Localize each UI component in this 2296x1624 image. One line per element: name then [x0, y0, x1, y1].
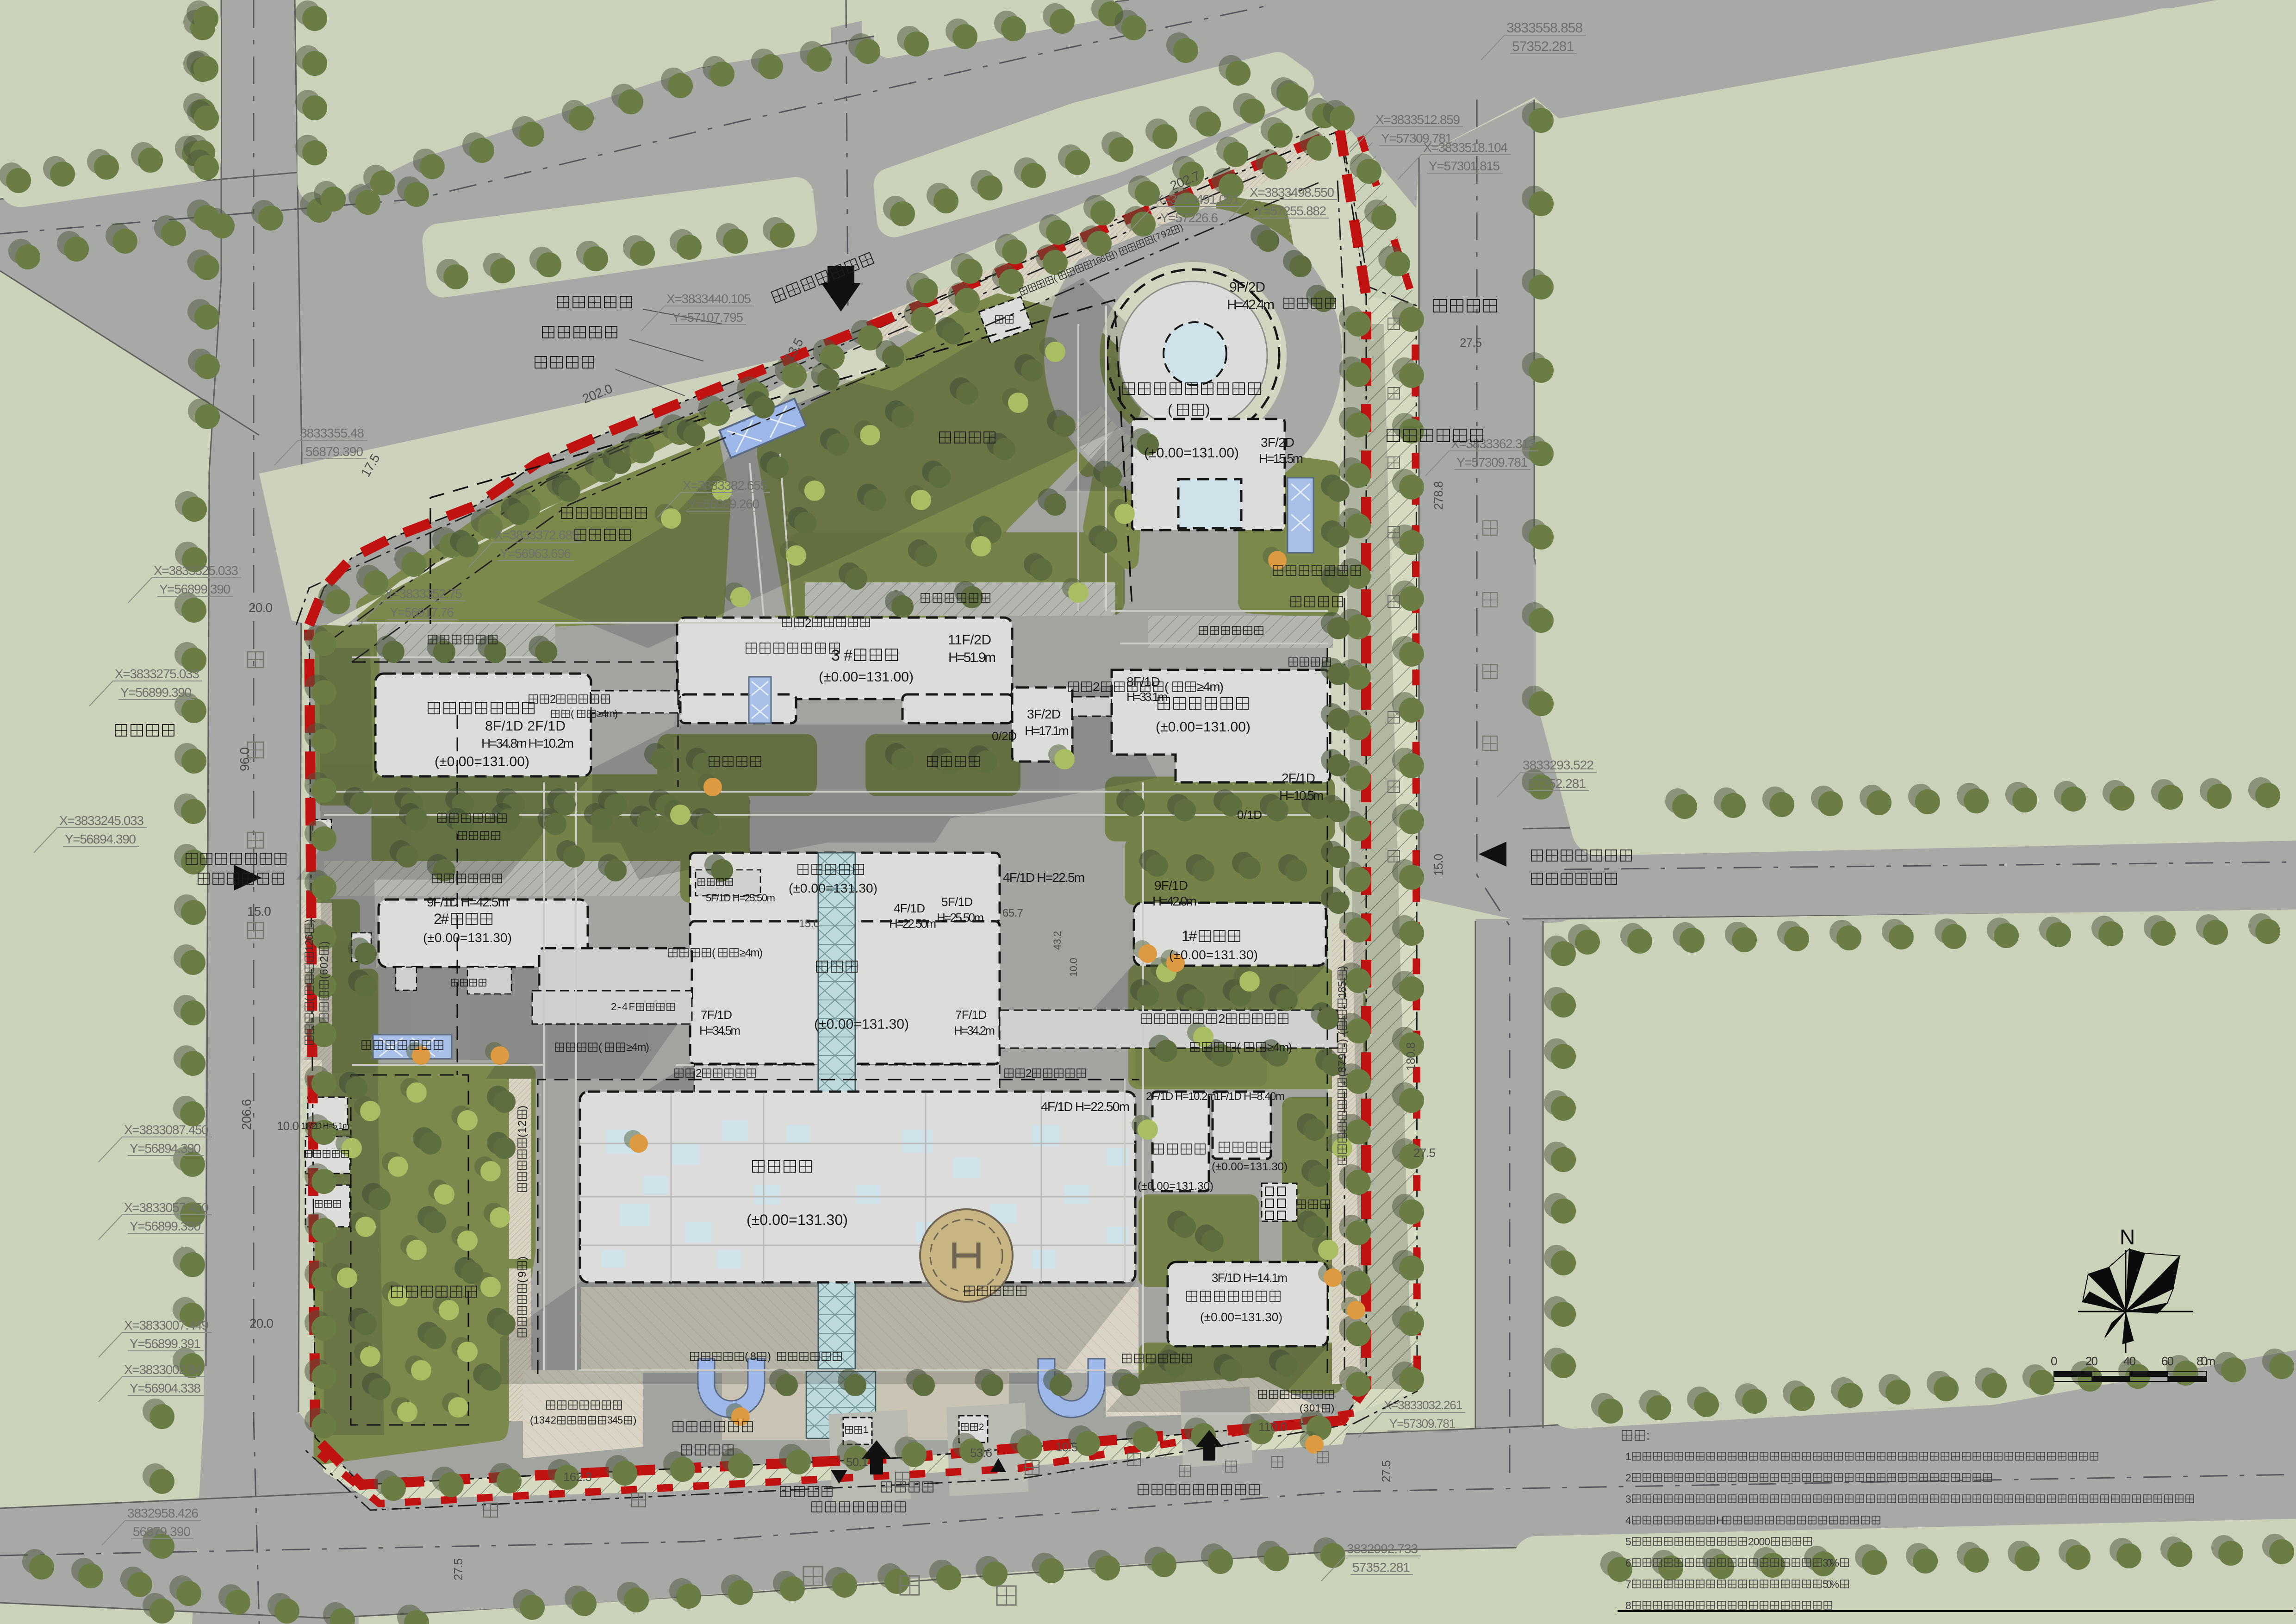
- svg-text:X=3833325.033: X=3833325.033: [154, 563, 238, 578]
- svg-text:3833558.858: 3833558.858: [1506, 20, 1583, 36]
- svg-text:X=3833440.105: X=3833440.105: [666, 292, 751, 306]
- svg-text:9F/1D: 9F/1D: [1154, 878, 1188, 893]
- svg-text:126: 126: [303, 934, 316, 951]
- svg-text:60: 60: [2161, 1354, 2174, 1368]
- svg-text:2: 2: [805, 616, 811, 630]
- svg-text:0/2D: 0/2D: [992, 729, 1017, 743]
- svg-text:(9: (9: [516, 1271, 529, 1283]
- svg-text:5: 5: [1625, 1536, 1631, 1548]
- svg-text:H=22.50m: H=22.50m: [889, 917, 936, 931]
- svg-text:Y=56899.390: Y=56899.390: [130, 1219, 201, 1233]
- svg-text:57352.281: 57352.281: [1352, 1560, 1410, 1574]
- svg-text:): ): [1331, 1402, 1334, 1414]
- svg-text:4F/1D H=22.5m: 4F/1D H=22.5m: [1003, 870, 1085, 885]
- svg-text:(±0.00=131.00): (±0.00=131.00): [435, 754, 529, 769]
- svg-text:X=3833245.033: X=3833245.033: [59, 813, 144, 828]
- svg-text:2: 2: [1026, 1067, 1032, 1080]
- svg-text:(301: (301: [1300, 1402, 1321, 1414]
- svg-text:8: 8: [1625, 1599, 1631, 1612]
- svg-text:7F/1D: 7F/1D: [955, 1008, 987, 1022]
- svg-text:10.0: 10.0: [277, 1119, 299, 1133]
- svg-text:185: 185: [1336, 981, 1349, 998]
- svg-text:(±0.00=131.30): (±0.00=131.30): [1212, 1161, 1288, 1173]
- svg-text:4F/1D: 4F/1D: [894, 901, 925, 915]
- svg-text:27.5: 27.5: [1460, 336, 1482, 350]
- svg-text:H: H: [1716, 1514, 1724, 1526]
- svg-text:0: 0: [2051, 1354, 2057, 1368]
- svg-text:2: 2: [1625, 1472, 1631, 1484]
- svg-text:X=3833372.689: X=3833372.689: [494, 528, 579, 542]
- svg-text:1: 1: [863, 1425, 868, 1435]
- svg-text:(±0.00=131.30): (±0.00=131.30): [789, 881, 877, 895]
- svg-text:50.1: 50.1: [846, 1455, 868, 1469]
- svg-text:(±0.00=131.00): (±0.00=131.00): [819, 669, 914, 685]
- svg-text:3832992.733: 3832992.733: [1347, 1542, 1418, 1556]
- svg-text:X=3833057.450: X=3833057.450: [124, 1200, 209, 1215]
- svg-text:X=3833275.033: X=3833275.033: [115, 667, 199, 681]
- svg-text:3: 3: [1625, 1493, 1631, 1505]
- svg-text:206.6: 206.6: [239, 1099, 254, 1130]
- svg-text:30%: 30%: [1823, 1557, 1839, 1569]
- svg-text:H=51.9m: H=51.9m: [948, 650, 996, 665]
- svg-text:80m: 80m: [2196, 1354, 2215, 1368]
- svg-text:20.0: 20.0: [249, 600, 273, 615]
- svg-text:1F/2D H=5.1m: 1F/2D H=5.1m: [301, 1121, 349, 1131]
- svg-text:H=17.1m: H=17.1m: [1025, 724, 1069, 738]
- svg-text:Y=56899.391: Y=56899.391: [130, 1337, 201, 1351]
- svg-text:3832958.426: 3832958.426: [127, 1506, 199, 1520]
- svg-text:15.0: 15.0: [1431, 854, 1445, 876]
- svg-text:(±0.00=131.30): (±0.00=131.30): [1169, 948, 1258, 962]
- svg-text:0/1D: 0/1D: [1237, 808, 1262, 822]
- svg-text:Y=56894.390: Y=56894.390: [65, 832, 136, 846]
- svg-text:(602: (602: [318, 956, 330, 979]
- svg-text:1: 1: [1625, 1450, 1631, 1462]
- svg-text:(: (: [1168, 401, 1173, 418]
- svg-text:1F/1D H=8.40m: 1F/1D H=8.40m: [1214, 1090, 1285, 1103]
- svg-text:Y=56899.390: Y=56899.390: [120, 685, 192, 700]
- svg-text:(879: (879: [1336, 1054, 1349, 1077]
- svg-text::: :: [1646, 1428, 1650, 1443]
- svg-text:2F/1D: 2F/1D: [1282, 771, 1315, 785]
- svg-text:): ): [516, 1106, 529, 1109]
- svg-text:(: (: [303, 998, 316, 1001]
- svg-text:4F/1D H=22.50m: 4F/1D H=22.50m: [1041, 1099, 1130, 1114]
- svg-text:Y=56904.338: Y=56904.338: [130, 1381, 201, 1395]
- svg-text:5F/1D H=25.50m: 5F/1D H=25.50m: [706, 892, 775, 904]
- svg-text:(±0.00=131.30): (±0.00=131.30): [747, 1212, 848, 1228]
- svg-text:X=3833382.655: X=3833382.655: [683, 478, 767, 493]
- svg-text:2000: 2000: [1748, 1536, 1770, 1548]
- svg-text:56879.390: 56879.390: [305, 444, 363, 459]
- svg-text:(1342: (1342: [530, 1414, 556, 1426]
- svg-text:27.5: 27.5: [1379, 1460, 1393, 1482]
- svg-text:2-4F: 2-4F: [611, 1001, 635, 1012]
- svg-text:2#: 2#: [434, 911, 449, 927]
- svg-text:20.0: 20.0: [249, 1316, 274, 1330]
- svg-text:180.8: 180.8: [1404, 1042, 1418, 1071]
- svg-text:50%: 50%: [1823, 1578, 1839, 1590]
- svg-text:Y=56989.260: Y=56989.260: [688, 497, 759, 511]
- svg-text:96.0: 96.0: [237, 747, 252, 771]
- svg-text:43.2: 43.2: [1052, 931, 1063, 950]
- svg-text:): ): [1336, 966, 1349, 969]
- svg-text:N: N: [2120, 1225, 2135, 1249]
- svg-text:X=3833002.84: X=3833002.84: [124, 1362, 202, 1377]
- svg-text:11F/2D: 11F/2D: [948, 632, 991, 648]
- svg-text:2: 2: [979, 1422, 984, 1432]
- svg-text:≥4m): ≥4m): [597, 708, 618, 719]
- svg-text:Y=56894.390: Y=56894.390: [130, 1141, 201, 1156]
- svg-text:1#: 1#: [1182, 928, 1197, 944]
- svg-text:Y=57309.781: Y=57309.781: [1456, 455, 1528, 469]
- svg-text:H=15.5m: H=15.5m: [1259, 451, 1303, 466]
- svg-text:2: 2: [1218, 1012, 1226, 1026]
- svg-text:H=34.5m: H=34.5m: [699, 1024, 740, 1037]
- svg-text:H=34.2m: H=34.2m: [954, 1024, 995, 1037]
- svg-text:2: 2: [696, 1067, 702, 1080]
- svg-text:3833355.48: 3833355.48: [300, 426, 364, 440]
- svg-text:Y=57107.795: Y=57107.795: [672, 310, 743, 325]
- svg-text:7F/1D: 7F/1D: [701, 1008, 732, 1022]
- svg-text:(±0.00=131.30): (±0.00=131.30): [1138, 1180, 1213, 1193]
- svg-text:9F/2D: 9F/2D: [1229, 280, 1265, 295]
- svg-text:Y=57255.882: Y=57255.882: [1255, 204, 1326, 218]
- svg-text:345: 345: [607, 1414, 623, 1426]
- svg-text:): ): [1205, 401, 1210, 418]
- svg-text:X=3833518.104: X=3833518.104: [1423, 140, 1508, 155]
- svg-text:3833293.522: 3833293.522: [1523, 758, 1594, 772]
- svg-text:2F/1D H=10.2m: 2F/1D H=10.2m: [1146, 1090, 1216, 1103]
- svg-text:X=3833007.449: X=3833007.449: [124, 1318, 209, 1332]
- svg-text:≥4m): ≥4m): [740, 947, 763, 959]
- svg-text:): ): [516, 1256, 529, 1260]
- svg-text:(±0.00=131.30): (±0.00=131.30): [423, 931, 512, 945]
- svg-text:≥4m): ≥4m): [626, 1041, 649, 1054]
- svg-text:Y=56963.696: Y=56963.696: [500, 546, 571, 561]
- svg-text:X=3833362.313: X=3833362.313: [1451, 437, 1536, 451]
- svg-text:110.0: 110.0: [1258, 1420, 1287, 1434]
- svg-text:): ): [767, 1350, 771, 1363]
- svg-text:(: (: [712, 947, 716, 959]
- svg-text:Y=57309.781: Y=57309.781: [1389, 1417, 1456, 1430]
- svg-text:3F/2D: 3F/2D: [1261, 435, 1294, 450]
- svg-text:5F/1D: 5F/1D: [941, 895, 973, 909]
- svg-text:8F/1D 2F/1D: 8F/1D 2F/1D: [485, 718, 566, 734]
- svg-text:10.5: 10.5: [1056, 1440, 1078, 1454]
- svg-text:3F/2D: 3F/2D: [1027, 707, 1061, 721]
- svg-text:10.0: 10.0: [1068, 958, 1079, 977]
- svg-text:Y=56917.76: Y=56917.76: [390, 605, 454, 619]
- svg-text:(: (: [571, 708, 574, 719]
- svg-text:53.6: 53.6: [970, 1446, 992, 1460]
- svg-text:(8: (8: [745, 1350, 756, 1363]
- svg-text:65.7: 65.7: [1002, 907, 1023, 919]
- svg-text:X=3833512.859: X=3833512.859: [1375, 112, 1460, 127]
- svg-text:(±0.00=131.30): (±0.00=131.30): [814, 1017, 909, 1032]
- svg-text:6: 6: [1625, 1557, 1631, 1569]
- svg-text:162.3: 162.3: [563, 1470, 592, 1484]
- svg-text:3F/1D H=14.1m: 3F/1D H=14.1m: [1212, 1271, 1288, 1285]
- svg-text:7: 7: [1625, 1578, 1631, 1590]
- svg-text:): ): [318, 941, 330, 945]
- svg-text:15.0: 15.0: [247, 904, 271, 918]
- svg-text:56879.390: 56879.390: [133, 1524, 191, 1539]
- svg-text:): ): [303, 919, 316, 923]
- svg-text:): ): [633, 1414, 636, 1426]
- svg-text:15.0: 15.0: [799, 918, 820, 930]
- svg-text:2: 2: [550, 693, 556, 706]
- svg-text:(±0.00=131.30): (±0.00=131.30): [1200, 1310, 1282, 1324]
- svg-text:H=10.5m: H=10.5m: [1279, 788, 1324, 803]
- svg-text:9F/1D H=42.5m: 9F/1D H=42.5m: [427, 895, 509, 909]
- svg-text:X=3833491.091: X=3833491.091: [1155, 192, 1239, 206]
- svg-text:4: 4: [1625, 1514, 1631, 1526]
- svg-text:(: (: [1237, 1040, 1241, 1054]
- svg-text:(±0.00=131.00): (±0.00=131.00): [1144, 445, 1239, 461]
- svg-text:H=42.4m: H=42.4m: [1227, 297, 1275, 312]
- svg-text:H=42.0m: H=42.0m: [1152, 894, 1197, 908]
- svg-text:H=33.1m: H=33.1m: [1126, 690, 1168, 704]
- svg-text:≥4m): ≥4m): [1267, 1040, 1292, 1054]
- svg-text:Y=57301.815: Y=57301.815: [1429, 159, 1500, 173]
- svg-text:Y=57226.6: Y=57226.6: [1160, 211, 1218, 225]
- svg-text:(12: (12: [516, 1120, 529, 1137]
- svg-text:X=3833352.75: X=3833352.75: [384, 587, 462, 601]
- svg-text:X=3833087.450: X=3833087.450: [124, 1123, 209, 1137]
- svg-text:40: 40: [2123, 1354, 2136, 1368]
- svg-text:2: 2: [1093, 680, 1100, 694]
- svg-text:(: (: [598, 1041, 602, 1054]
- svg-text:H=34.8m H=10.2m: H=34.8m H=10.2m: [481, 736, 574, 750]
- svg-text:≥4m): ≥4m): [1197, 680, 1224, 694]
- svg-text:8F/1D: 8F/1D: [1126, 675, 1160, 689]
- svg-text:57352.281: 57352.281: [1512, 39, 1574, 54]
- svg-text:(±0.00=131.00): (±0.00=131.00): [1156, 719, 1251, 735]
- svg-text:Y=56899.390: Y=56899.390: [159, 582, 230, 596]
- svg-text:27.5: 27.5: [1413, 1146, 1436, 1160]
- svg-text:H=25.50m: H=25.50m: [937, 911, 984, 924]
- svg-text:278.8: 278.8: [1431, 481, 1445, 510]
- svg-text:27.5: 27.5: [451, 1558, 465, 1580]
- svg-text:57352.281: 57352.281: [1528, 776, 1586, 791]
- svg-text:20: 20: [2085, 1354, 2098, 1368]
- svg-text:X=3833032.261: X=3833032.261: [1384, 1398, 1462, 1412]
- svg-text:X=3833498.550: X=3833498.550: [1250, 185, 1334, 200]
